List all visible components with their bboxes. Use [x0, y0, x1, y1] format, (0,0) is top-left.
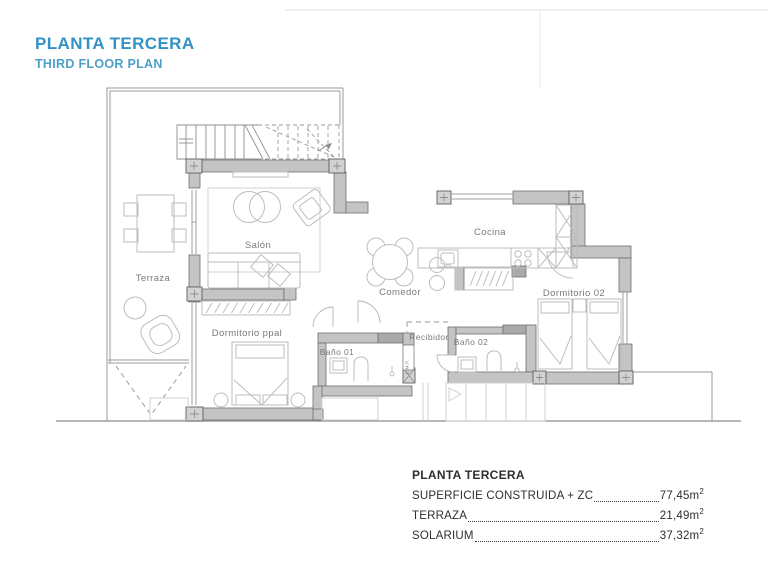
room-label-terraza: Terraza	[136, 273, 171, 284]
leader-dots	[475, 541, 659, 542]
dorm-ppal-furniture	[202, 301, 305, 407]
leader-dots	[468, 521, 659, 522]
legend-label: TERRAZA	[412, 506, 467, 526]
comedor-furniture	[367, 238, 413, 286]
legend-value: 21,49m2	[660, 506, 704, 526]
bano01-fittings	[330, 357, 394, 381]
legend-row-solarium: SOLARIUM 37,32m2	[412, 526, 704, 546]
legend-label: SUPERFICIE CONSTRUIDA + ZC	[412, 486, 593, 506]
faint-guides	[285, 10, 768, 88]
legend-value: 77,45m2	[660, 486, 704, 506]
legend-value: 37,32m2	[660, 526, 704, 546]
room-label-dormitorio-ppal: Dormitorio ppal	[212, 328, 282, 339]
floor-plan-page: PLANTA TERCERA THIRD FLOOR PLAN	[0, 0, 780, 566]
legend-title: PLANTA TERCERA	[412, 468, 704, 482]
bano02-fittings	[458, 351, 519, 374]
room-label-bano-02: Baño 02	[454, 337, 488, 347]
leader-dots	[594, 501, 659, 502]
cocina-fittings	[418, 205, 577, 291]
salon-furniture	[208, 172, 332, 288]
room-label-salon: Salón	[245, 240, 271, 251]
dorm02-furniture	[538, 299, 621, 369]
cmp-shaft: C.M.P.	[403, 345, 414, 374]
room-label-dormitorio-02: Dormitorio 02	[543, 288, 605, 299]
room-label-recibidor: Recibidor	[409, 332, 449, 342]
legend-label: SOLARIUM	[412, 526, 474, 546]
room-label-comedor: Comedor	[379, 287, 421, 298]
room-label-bano-01: Baño 01	[320, 347, 354, 357]
staircase-upper	[177, 125, 339, 159]
legend-row-terraza: TERRAZA 21,49m2	[412, 506, 704, 526]
room-label-cmp: C.M.P.	[405, 360, 410, 375]
legend-row-superficie: SUPERFICIE CONSTRUIDA + ZC 77,45m2	[412, 486, 704, 506]
room-label-cocina: Cocina	[474, 227, 506, 238]
legend: PLANTA TERCERA SUPERFICIE CONSTRUIDA + Z…	[412, 468, 704, 546]
